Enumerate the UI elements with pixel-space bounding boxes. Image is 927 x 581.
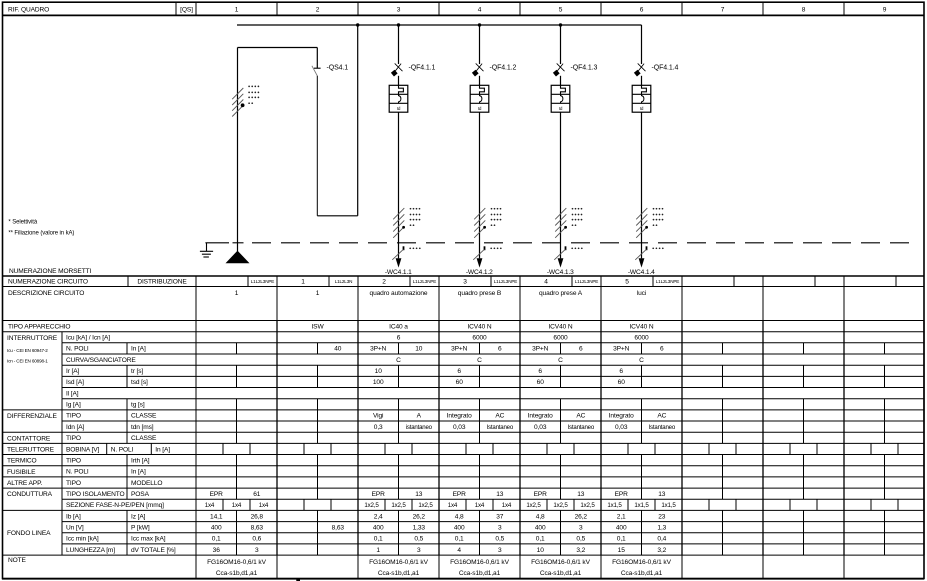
svg-text:0,3: 0,3 (374, 424, 383, 431)
svg-text:-WC4.1.4: -WC4.1.4 (628, 269, 655, 276)
svg-text:IC40 a: IC40 a (389, 323, 408, 330)
svg-text:1: 1 (376, 547, 380, 554)
svg-text:TELERUTTORE: TELERUTTORE (7, 446, 55, 453)
svg-text:14,1: 14,1 (210, 513, 223, 520)
svg-text:10: 10 (375, 368, 383, 375)
svg-text:3P+N: 3P+N (613, 346, 630, 353)
svg-text:Vigi: Vigi (373, 413, 384, 420)
svg-text:EPR: EPR (453, 491, 467, 498)
svg-text:1x2,5: 1x2,5 (580, 502, 595, 509)
svg-text:C: C (477, 357, 482, 364)
svg-text:quadro prese B: quadro prese B (458, 290, 502, 297)
svg-text:6: 6 (457, 368, 461, 375)
svg-text:tsd [s]: tsd [s] (131, 379, 148, 386)
svg-text:CONTATTORE: CONTATTORE (7, 435, 51, 442)
svg-text:0,5: 0,5 (495, 536, 504, 543)
svg-text:istantaneo: istantaneo (406, 424, 433, 431)
svg-text:8,63: 8,63 (332, 524, 345, 531)
svg-text:3,2: 3,2 (576, 547, 585, 554)
svg-text:FG16OM16-0,6/1 kV: FG16OM16-0,6/1 kV (369, 559, 429, 566)
svg-text:1x4: 1x4 (502, 502, 512, 509)
svg-text:6000: 6000 (472, 335, 487, 342)
svg-text:Isd [A]: Isd [A] (66, 379, 84, 386)
svg-text:36: 36 (213, 547, 221, 554)
svg-text:Cca-s1b,d1,a1: Cca-s1b,d1,a1 (378, 570, 420, 577)
svg-text:3: 3 (397, 6, 401, 13)
svg-text:1x2,5: 1x2,5 (526, 502, 541, 509)
svg-text:-QF4.1.1: -QF4.1.1 (409, 64, 436, 71)
svg-text:EPR: EPR (210, 491, 224, 498)
svg-text:0,5: 0,5 (414, 536, 423, 543)
svg-text:ISW: ISW (311, 323, 324, 330)
svg-text:ICV40 N: ICV40 N (548, 323, 572, 330)
svg-text:0,5: 0,5 (576, 536, 585, 543)
svg-text:15: 15 (618, 547, 626, 554)
svg-text:NOTE: NOTE (8, 557, 27, 564)
svg-text:26,8: 26,8 (251, 513, 264, 520)
svg-text:Icu [kA] / Icn [A]: Icu [kA] / Icn [A] (66, 335, 110, 342)
svg-text:TIPO: TIPO (66, 435, 81, 442)
svg-text:TIPO APPARECCHIO: TIPO APPARECCHIO (8, 323, 70, 330)
svg-text:3P+N: 3P+N (370, 346, 387, 353)
svg-text:L1L2L3NPE: L1L2L3NPE (656, 279, 680, 284)
svg-text:1x4: 1x4 (448, 502, 458, 509)
svg-text:TIPO ISOLAMENTO: TIPO ISOLAMENTO (66, 491, 125, 498)
svg-text:1: 1 (301, 279, 305, 286)
svg-text:8: 8 (802, 6, 806, 13)
svg-text:tg [s]: tg [s] (131, 402, 145, 409)
svg-text:-WC4.1.2: -WC4.1.2 (466, 269, 493, 276)
svg-text:tr [s]: tr [s] (131, 368, 143, 375)
svg-text:400: 400 (373, 524, 384, 531)
svg-text:3: 3 (498, 547, 502, 554)
svg-text:P [kW]: P [kW] (131, 524, 150, 531)
svg-text:1x4: 1x4 (205, 502, 215, 509)
svg-text:AC: AC (657, 413, 666, 420)
svg-text:POSA: POSA (131, 491, 150, 498)
svg-text:Cca-s1b,d1,a1: Cca-s1b,d1,a1 (459, 570, 501, 577)
svg-text:6: 6 (579, 346, 583, 353)
svg-text:0,1: 0,1 (212, 536, 221, 543)
svg-text:0,4: 0,4 (657, 536, 666, 543)
svg-text:6: 6 (397, 335, 401, 342)
svg-text:4,8: 4,8 (536, 513, 545, 520)
svg-text:L1L2L3NPE: L1L2L3NPE (251, 279, 275, 284)
svg-text:6000: 6000 (634, 335, 649, 342)
svg-text:EPR: EPR (372, 491, 386, 498)
svg-text:1x4: 1x4 (232, 502, 242, 509)
svg-text:4: 4 (544, 279, 548, 286)
svg-text:6000: 6000 (553, 335, 568, 342)
svg-text:FG16OM16-0,6/1 kV: FG16OM16-0,6/1 kV (531, 559, 591, 566)
svg-text:1,33: 1,33 (413, 524, 426, 531)
svg-text:FUSIBILE: FUSIBILE (7, 469, 36, 476)
svg-text:L1L2L3NPE: L1L2L3NPE (575, 279, 599, 284)
svg-text:6: 6 (640, 6, 644, 13)
svg-text:DISTRIBUZIONE: DISTRIBUZIONE (137, 279, 187, 286)
svg-text:0,1: 0,1 (617, 536, 626, 543)
svg-text:10: 10 (537, 547, 545, 554)
svg-text:CURVA/SGANCIATORE: CURVA/SGANCIATORE (66, 357, 136, 364)
svg-text:10: 10 (415, 346, 423, 353)
svg-text:DESCRIZIONE CIRCUITO: DESCRIZIONE CIRCUITO (8, 290, 84, 297)
svg-text:AC: AC (576, 413, 585, 420)
svg-text:1x1,5: 1x1,5 (661, 502, 676, 509)
svg-text:L1L2L3NPE: L1L2L3NPE (494, 279, 518, 284)
svg-text:TIPO: TIPO (66, 480, 81, 487)
svg-text:L1L2L3N: L1L2L3N (335, 279, 353, 284)
svg-text:Id: Id (397, 106, 401, 111)
svg-text:2,4: 2,4 (374, 513, 383, 520)
svg-text:TIPO: TIPO (66, 457, 81, 464)
svg-text:-WC4.1.1: -WC4.1.1 (385, 269, 412, 276)
svg-text:1x2,5: 1x2,5 (553, 502, 568, 509)
svg-text:luci: luci (637, 290, 647, 297)
svg-text:-QF4.1.3: -QF4.1.3 (571, 64, 598, 71)
svg-text:3: 3 (255, 547, 259, 554)
svg-text:-WC4.1.3: -WC4.1.3 (547, 269, 574, 276)
svg-text:0,03: 0,03 (534, 424, 547, 431)
svg-text:SEZIONE FASE-N-PE/PEN [mmq]: SEZIONE FASE-N-PE/PEN [mmq] (66, 502, 164, 509)
svg-text:4: 4 (478, 6, 482, 13)
svg-text:1x2,5: 1x2,5 (391, 502, 406, 509)
svg-text:BOBINA [V]: BOBINA [V] (66, 446, 100, 453)
svg-text:Un [V]: Un [V] (66, 524, 84, 531)
svg-text:CLASSE: CLASSE (131, 413, 157, 420)
svg-text:1: 1 (235, 6, 239, 13)
svg-text:LUNGHEZZA [m]: LUNGHEZZA [m] (66, 547, 115, 554)
svg-text:37: 37 (496, 513, 504, 520)
svg-text:INTERRUTTORE: INTERRUTTORE (7, 335, 58, 342)
svg-text:MODELLO: MODELLO (131, 480, 162, 487)
svg-text:60: 60 (537, 379, 545, 386)
svg-text:Integrato: Integrato (528, 413, 553, 420)
svg-text:Idn [A]: Idn [A] (66, 424, 85, 431)
svg-text:4,8: 4,8 (455, 513, 464, 520)
svg-text:6: 6 (619, 368, 623, 375)
svg-text:3: 3 (463, 279, 467, 286)
svg-text:NUMERAZIONE CIRCUITO: NUMERAZIONE CIRCUITO (8, 279, 88, 286)
svg-text:Ig [A]: Ig [A] (66, 402, 81, 409)
svg-text:quadro prese A: quadro prese A (539, 290, 583, 297)
svg-text:400: 400 (454, 524, 465, 531)
svg-text:** Filiazione (valore in kA): ** Filiazione (valore in kA) (8, 231, 74, 237)
svg-text:400: 400 (535, 524, 546, 531)
svg-text:26,2: 26,2 (575, 513, 588, 520)
svg-text:9: 9 (883, 6, 887, 13)
svg-text:Ib [A]: Ib [A] (66, 513, 81, 520)
svg-text:TIPO: TIPO (66, 413, 81, 420)
svg-text:5: 5 (559, 6, 563, 13)
svg-text:In [A]: In [A] (155, 446, 170, 453)
svg-text:13: 13 (577, 491, 585, 498)
svg-text:Cca-s1b,d1,a1: Cca-s1b,d1,a1 (216, 570, 258, 577)
svg-text:Icc min [kA]: Icc min [kA] (66, 536, 99, 543)
svg-text:6: 6 (538, 368, 542, 375)
svg-text:3,2: 3,2 (657, 547, 666, 554)
svg-text:L1L2L3NPE: L1L2L3NPE (413, 279, 437, 284)
svg-text:ICV40 N: ICV40 N (629, 323, 653, 330)
svg-text:0,1: 0,1 (374, 536, 383, 543)
svg-text:0,6: 0,6 (252, 536, 261, 543)
svg-text:RIF. QUADRO: RIF. QUADRO (8, 6, 49, 13)
svg-text:Id: Id (559, 106, 563, 111)
svg-text:TERMICO: TERMICO (7, 458, 37, 465)
svg-text:A: A (417, 413, 422, 420)
svg-text:1x1,5: 1x1,5 (634, 502, 649, 509)
svg-text:Istantaneo: Istantaneo (568, 424, 595, 431)
svg-text:quadro automazione: quadro automazione (370, 290, 428, 297)
svg-text:C: C (558, 357, 563, 364)
svg-text:N. POLI: N. POLI (111, 446, 134, 453)
svg-text:Iz [A]: Iz [A] (131, 513, 146, 520)
svg-text:4: 4 (457, 547, 461, 554)
svg-text:Integrato: Integrato (609, 413, 634, 420)
svg-text:-QF4.1.4: -QF4.1.4 (652, 64, 679, 71)
svg-text:1x4: 1x4 (475, 502, 485, 509)
svg-text:Icn - CEI EN 60898-1: Icn - CEI EN 60898-1 (7, 359, 48, 364)
svg-text:In [A]: In [A] (131, 469, 146, 476)
svg-text:0,03: 0,03 (453, 424, 466, 431)
svg-text:CONDUTTURA: CONDUTTURA (7, 491, 53, 498)
svg-text:6: 6 (498, 346, 502, 353)
svg-text:13: 13 (415, 491, 423, 498)
svg-text:AC: AC (495, 413, 504, 420)
svg-text:ALTRE APP.: ALTRE APP. (7, 480, 42, 487)
svg-text:100: 100 (373, 379, 384, 386)
svg-text:2: 2 (382, 279, 386, 286)
svg-text:* Selettività: * Selettività (8, 219, 37, 225)
svg-text:Id: Id (640, 106, 644, 111)
svg-text:8,63: 8,63 (251, 524, 264, 531)
svg-text:3: 3 (498, 524, 502, 531)
svg-text:3: 3 (579, 524, 583, 531)
svg-text:40: 40 (334, 346, 342, 353)
svg-text:C: C (639, 357, 644, 364)
svg-text:23: 23 (658, 513, 666, 520)
svg-text:3: 3 (417, 547, 421, 554)
svg-text:Istantaneo: Istantaneo (649, 424, 676, 431)
svg-text:Id: Id (478, 106, 482, 111)
svg-text:1: 1 (316, 290, 320, 297)
svg-text:0,1: 0,1 (536, 536, 545, 543)
svg-text:1x2,5: 1x2,5 (418, 502, 433, 509)
svg-text:FG16OM16-0,6/1 kV: FG16OM16-0,6/1 kV (207, 559, 267, 566)
svg-text:2: 2 (316, 6, 320, 13)
svg-text:CLASSE: CLASSE (131, 435, 157, 442)
svg-text:Irth [A]: Irth [A] (131, 457, 150, 464)
svg-text:Cca-s1b,d1,a1: Cca-s1b,d1,a1 (540, 570, 582, 577)
svg-text:13: 13 (658, 491, 666, 498)
svg-text:5: 5 (625, 279, 629, 286)
svg-text:Cca-s1b,d1,a1: Cca-s1b,d1,a1 (621, 570, 663, 577)
svg-text:-QF4.1.2: -QF4.1.2 (490, 64, 517, 71)
svg-text:6: 6 (660, 346, 664, 353)
svg-text:7: 7 (721, 6, 725, 13)
svg-text:FONDO LINEA: FONDO LINEA (7, 530, 51, 537)
svg-text:3P+N: 3P+N (532, 346, 549, 353)
svg-text:EPR: EPR (615, 491, 629, 498)
svg-text:EPR: EPR (534, 491, 548, 498)
svg-text:Integrato: Integrato (447, 413, 472, 420)
svg-text:Icc max [kA]: Icc max [kA] (131, 536, 166, 543)
svg-text:In [A]: In [A] (131, 346, 146, 353)
svg-text:DIFFERENZIALE: DIFFERENZIALE (7, 413, 57, 420)
svg-text:1x1,5: 1x1,5 (607, 502, 622, 509)
svg-text:26,2: 26,2 (413, 513, 426, 520)
svg-text:60: 60 (618, 379, 626, 386)
svg-text:C: C (396, 357, 401, 364)
svg-text:400: 400 (211, 524, 222, 531)
svg-text:60: 60 (456, 379, 464, 386)
svg-text:0,03: 0,03 (615, 424, 628, 431)
svg-text:dV TOTALE [%]: dV TOTALE [%] (131, 547, 176, 554)
svg-text:[QS]: [QS] (180, 6, 193, 13)
svg-text:3P+N: 3P+N (451, 346, 468, 353)
svg-text:Ir [A]: Ir [A] (66, 368, 79, 375)
svg-text:Icu - CEI EN 60947-2: Icu - CEI EN 60947-2 (7, 348, 48, 353)
svg-text:NUMERAZIONE MORSETTI: NUMERAZIONE MORSETTI (9, 268, 92, 275)
svg-text:-QS4.1: -QS4.1 (327, 64, 349, 71)
svg-text:FG16OM16-0,6/1 kV: FG16OM16-0,6/1 kV (450, 559, 510, 566)
svg-text:N. POLI: N. POLI (66, 346, 89, 353)
svg-text:1x4: 1x4 (259, 502, 269, 509)
svg-text:2,1: 2,1 (617, 513, 626, 520)
svg-text:Istantaneo: Istantaneo (487, 424, 514, 431)
svg-text:61: 61 (253, 491, 261, 498)
svg-text:ICV40 N: ICV40 N (467, 323, 491, 330)
svg-text:1,3: 1,3 (657, 524, 666, 531)
svg-text:400: 400 (616, 524, 627, 531)
svg-text:Il [A]: Il [A] (66, 390, 79, 397)
svg-text:N. POLI: N. POLI (66, 469, 89, 476)
svg-text:FG16OM16-0,6/1 kV: FG16OM16-0,6/1 kV (612, 559, 672, 566)
svg-text:1x2,5: 1x2,5 (364, 502, 379, 509)
svg-text:1: 1 (235, 290, 239, 297)
svg-text:13: 13 (496, 491, 504, 498)
svg-text:tdn [ms]: tdn [ms] (131, 424, 154, 431)
svg-text:0,1: 0,1 (455, 536, 464, 543)
